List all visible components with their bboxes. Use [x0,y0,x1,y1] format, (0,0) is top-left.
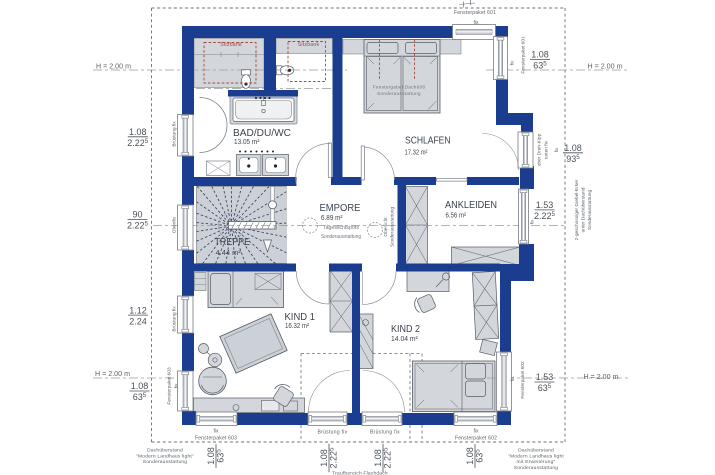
svg-text:Fensterpaket 603: Fensterpaket 603 [195,435,237,441]
svg-text:1.53: 1.53 [536,372,554,382]
svg-text:Sonderausstattung: Sonderausstattung [321,234,361,240]
svg-text:fix: fix [510,376,516,381]
svg-text:H = 2.00 m: H = 2.00 m [588,63,623,70]
svg-text:Sitzbank: Sitzbank [298,42,320,48]
svg-text:Sonderausstattung: Sonderausstattung [143,459,188,465]
svg-text:1.08: 1.08 [129,127,147,137]
svg-text:Obenfix: Obenfix [172,216,178,233]
svg-text:Sitzbank: Sitzbank [220,42,242,48]
svg-text:Sonderausstattung: Sonderausstattung [390,207,396,248]
svg-text:Fensterpaket 602: Fensterpaket 602 [455,435,497,441]
svg-text:2-geschossiger Giebel-Erker: 2-geschossiger Giebel-Erker [574,179,580,240]
svg-text:"Modern Landhaus light: "Modern Landhaus light [508,453,564,459]
svg-text:Sonderausstattung: Sonderausstattung [514,465,559,471]
svg-text:Sonderausstattung: Sonderausstattung [377,91,421,96]
svg-text:fix: fix [554,147,560,152]
svg-text:fix: fix [474,20,480,26]
svg-text:fix: fix [474,428,480,434]
svg-text:Fensterpaket 601: Fensterpaket 601 [521,36,527,74]
svg-text:6.56 m²: 6.56 m² [446,213,467,220]
svg-text:fix: fix [174,383,180,388]
svg-text:unter Dachüberstand: unter Dachüberstand [581,187,587,232]
svg-text:KIND 2: KIND 2 [391,323,420,335]
svg-text:KIND 1: KIND 1 [285,311,316,323]
svg-text:14.04 m²: 14.04 m² [391,336,418,343]
svg-text:Traufbereich Flachdach: Traufbereich Flachdach [332,471,388,475]
svg-text:H = 2.00 m: H = 2.00 m [584,374,619,381]
svg-text:Tageslichtspots: Tageslichtspots [323,225,359,231]
svg-text:fix: fix [510,60,516,65]
svg-text:90: 90 [132,210,142,220]
svg-text:Oberlicht: Oberlicht [383,217,389,237]
svg-text:Sonderausstattung: Sonderausstattung [587,190,593,231]
svg-text:ober Dreh-Kipp: ober Dreh-Kipp [537,133,543,166]
svg-text:SCHLAFEN: SCHLAFEN [405,135,451,147]
svg-text:Fensterpaket 601: Fensterpaket 601 [454,10,496,16]
svg-text:EMPORE: EMPORE [320,202,361,214]
svg-text:"Modern Landhaus light": "Modern Landhaus light" [136,453,194,459]
svg-text:BAD/DU/WC: BAD/DU/WC [233,127,291,139]
svg-text:Brüstung fix: Brüstung fix [317,429,347,435]
svg-text:Brüstung fix: Brüstung fix [172,121,178,147]
svg-text:Fensterpaket 603: Fensterpaket 603 [167,367,173,405]
svg-text:2.24: 2.24 [129,316,147,326]
svg-text:unten fix: unten fix [544,140,550,159]
svg-text:13.05 m²: 13.05 m² [234,139,260,146]
svg-text:Brüstung fix: Brüstung fix [370,429,400,435]
svg-text:1.08: 1.08 [531,50,549,60]
svg-text:fix: fix [214,428,220,434]
svg-text:Fensterpaket 602: Fensterpaket 602 [520,361,526,399]
svg-text:16.32 m²: 16.32 m² [285,323,310,330]
svg-text:6.89 m²: 6.89 m² [321,215,343,222]
svg-text:Brüstung fix: Brüstung fix [172,306,178,332]
svg-text:Dachüberstand: Dachüberstand [147,448,183,454]
svg-text:1.08: 1.08 [564,143,582,153]
svg-text:H = 2.00 m: H = 2.00 m [96,63,131,70]
svg-text:TREPPE: TREPPE [215,237,251,248]
svg-text:fix: fix [530,219,536,224]
svg-text:17.32 m²: 17.32 m² [405,150,429,157]
svg-text:1.53: 1.53 [536,200,554,210]
svg-text:Fenstergabel Dach608: Fenstergabel Dach608 [373,84,426,89]
svg-text:H = 2.00 m: H = 2.00 m [95,371,130,378]
svg-text:1.12: 1.12 [129,305,147,315]
svg-text:ANKLEIDEN: ANKLEIDEN [445,199,497,211]
svg-text:mit Erweiterung": mit Erweiterung" [517,459,556,465]
svg-text:Dachüberstand: Dachüberstand [518,448,554,454]
svg-text:4.44 m²: 4.44 m² [216,250,242,257]
svg-text:1.08: 1.08 [131,381,149,391]
